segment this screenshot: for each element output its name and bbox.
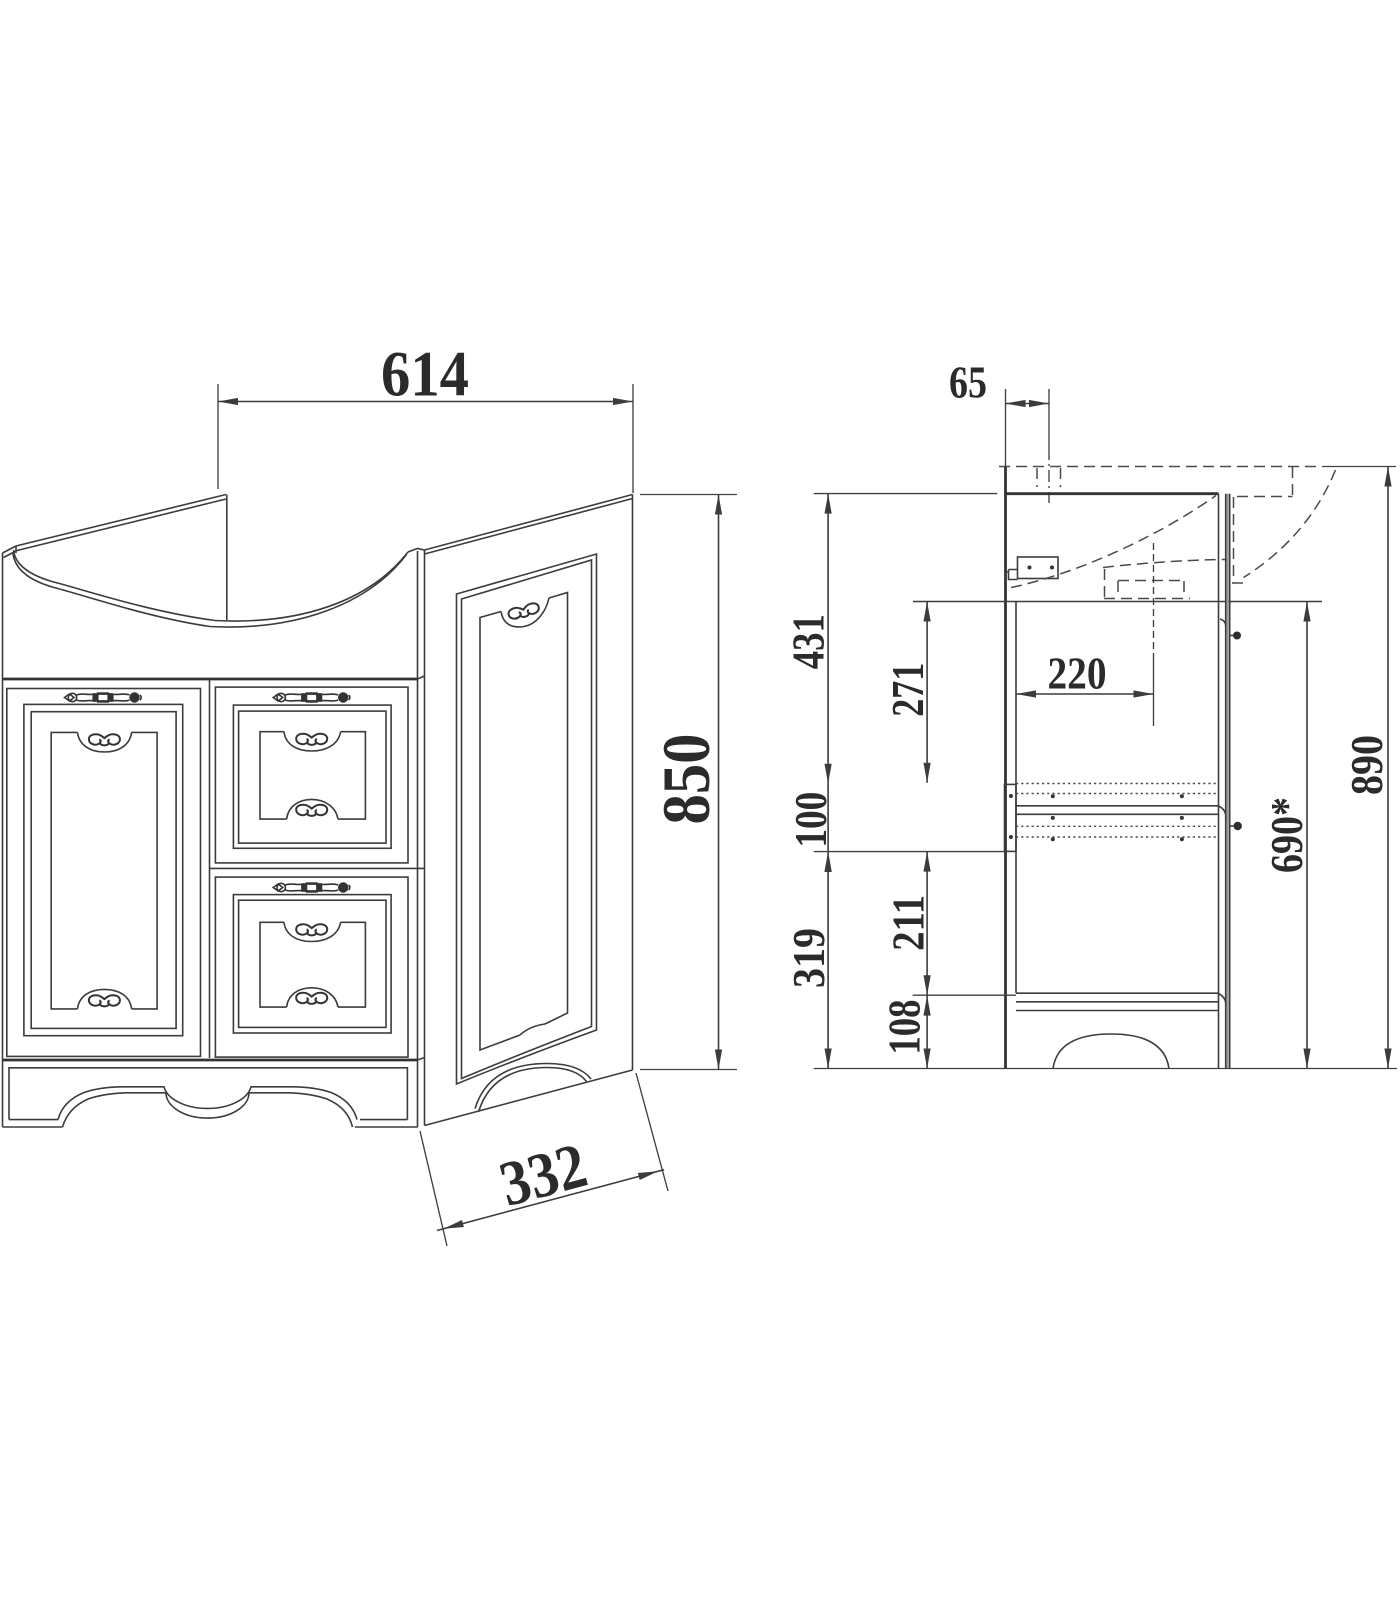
svg-text:220: 220 (1048, 649, 1107, 699)
svg-text:690*: 690* (1262, 797, 1312, 873)
svg-text:211: 211 (884, 895, 934, 951)
svg-text:319: 319 (784, 928, 834, 988)
svg-text:850: 850 (648, 734, 724, 825)
svg-text:100: 100 (786, 792, 836, 848)
svg-text:890: 890 (1342, 735, 1392, 795)
svg-text:614: 614 (381, 339, 469, 411)
svg-text:108: 108 (880, 1000, 930, 1055)
svg-text:271: 271 (883, 663, 933, 717)
svg-text:431: 431 (783, 614, 833, 669)
svg-text:65: 65 (949, 358, 987, 408)
